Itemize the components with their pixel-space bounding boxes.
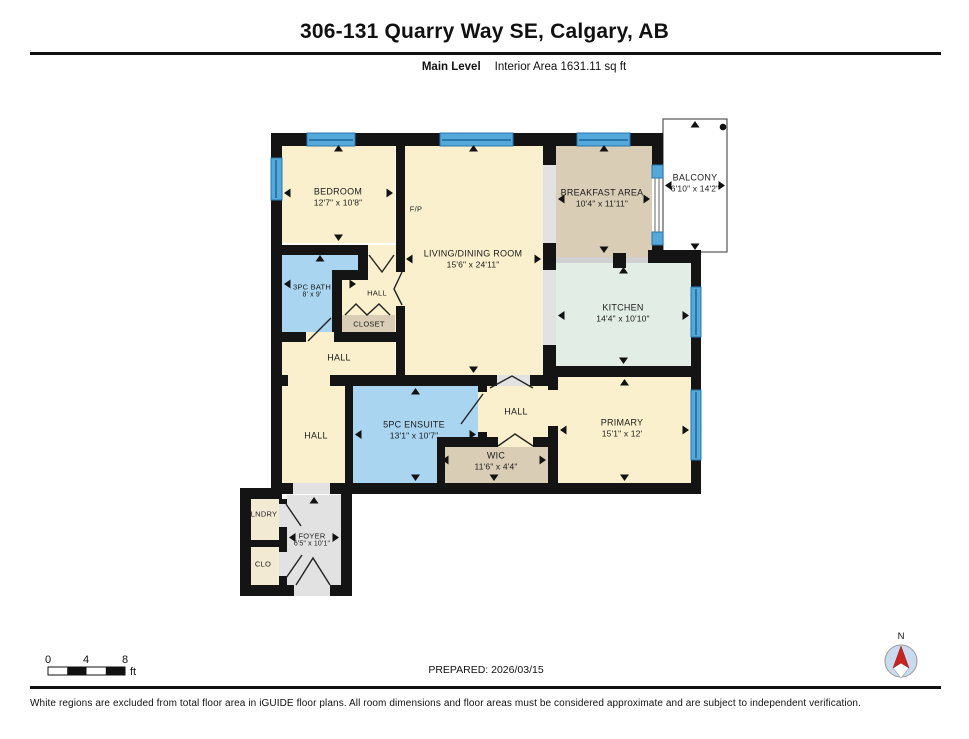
room-dims: 10'4" x 11'11"	[561, 198, 644, 208]
room-dims: 12'7" x 10'8"	[314, 197, 363, 207]
room-label-hall-right: HALL	[504, 407, 528, 418]
room-label-breakfast: BREAKFAST AREA 10'4" x 11'11"	[561, 188, 644, 209]
room-dims: 15'6" x 24'11"	[424, 259, 523, 269]
prepared-date: PREPARED: 2026/03/15	[428, 664, 543, 676]
room-label-hall-mid: HALL	[327, 353, 351, 364]
room-name: HALL	[304, 431, 328, 442]
room-label-hall-left: HALL	[304, 431, 328, 442]
room-label-closet: CLOSET	[353, 320, 385, 329]
room-dims: 11'6" x 4'4"	[474, 461, 517, 471]
room-label-clo: CLO	[255, 560, 271, 569]
room-name: CLO	[255, 560, 271, 569]
clo-doorway	[279, 552, 287, 576]
room-name: 3PC BATH	[293, 282, 331, 291]
room-name: 5PC ENSUITE	[383, 420, 445, 431]
room-dims: 6'5" x 10'1"	[294, 540, 330, 548]
room-label-wic: WIC 11'6" x 4'4"	[474, 451, 517, 472]
room-label-balcony: BALCONY 6'10" x 14'2"	[671, 173, 720, 194]
hall-foyer-opening	[293, 483, 330, 494]
kitchen-counter-edge	[556, 257, 648, 263]
room-label-bedroom: BEDROOM 12'7" x 10'8"	[314, 187, 363, 208]
scale-bar	[48, 667, 125, 675]
bath-doorway	[306, 332, 334, 342]
compass-north-label: N	[898, 631, 905, 642]
bedroom-doorway	[368, 245, 396, 255]
lndry-doorway	[279, 504, 287, 527]
ensuite-floor-lower	[353, 437, 440, 483]
room-label-foyer: FOYER 6'5" x 10'1"	[294, 531, 330, 548]
balcony-door-sidelight-bottom	[652, 232, 663, 245]
room-name: KITCHEN	[596, 303, 649, 314]
scale-tick-0: 0	[45, 654, 51, 666]
room-label-kitchen: KITCHEN 14'4" x 10'10"	[596, 303, 649, 324]
room-dims: 8' x 9'	[293, 291, 331, 299]
scale-tick-8: 8	[122, 654, 128, 666]
room-label-lndry: LNDRY	[251, 510, 278, 519]
lndry-floor	[251, 499, 279, 540]
room-label-ensuite: 5PC ENSUITE 13'1" x 10'7"	[383, 420, 445, 441]
room-name: WIC	[474, 451, 517, 462]
room-name: BEDROOM	[314, 187, 363, 198]
floorplan-canvas	[0, 0, 969, 739]
room-name: BALCONY	[671, 173, 720, 184]
room-name: BREAKFAST AREA	[561, 188, 644, 199]
compass-rose	[885, 645, 917, 678]
floorplan-page: 306-131 Quarry Way SE, Calgary, AB Main …	[0, 0, 969, 739]
room-dims: 13'1" x 10'7"	[383, 430, 445, 440]
room-dims: 15'1" x 12'	[601, 428, 644, 438]
scale-tick-4: 4	[83, 654, 89, 666]
balcony-door-sidelight-top	[652, 165, 663, 178]
room-name: FOYER	[294, 531, 330, 540]
room-name: F/P	[410, 205, 422, 214]
room-dims: 14'4" x 10'10"	[596, 313, 649, 323]
room-name: CLOSET	[353, 320, 385, 329]
entry-doorway	[294, 585, 330, 596]
fireplace-label: F/P	[410, 205, 422, 214]
hall-mid-doorway	[288, 375, 330, 386]
living-kitchen-opening	[543, 270, 556, 345]
footer-divider	[30, 686, 941, 689]
room-name: PRIMARY	[601, 418, 644, 429]
disclaimer-text: White regions are excluded from total fl…	[30, 698, 861, 709]
room-name: HALL	[367, 289, 387, 298]
room-name: HALL	[504, 407, 528, 418]
room-label-hall-top: HALL	[367, 289, 387, 298]
room-dims: 6'10" x 14'2"	[671, 183, 720, 193]
scale-unit: ft	[130, 666, 136, 678]
room-name: HALL	[327, 353, 351, 364]
room-name: LIVING/DINING ROOM	[424, 249, 523, 260]
balcony-corner-post	[720, 124, 727, 131]
room-name: LNDRY	[251, 510, 278, 519]
living-breakfast-opening	[543, 165, 556, 243]
room-label-primary: PRIMARY 15'1" x 12'	[601, 418, 644, 439]
room-label-bath: 3PC BATH 8' x 9'	[293, 282, 331, 299]
room-label-living: LIVING/DINING ROOM 15'6" x 24'11"	[424, 249, 523, 270]
